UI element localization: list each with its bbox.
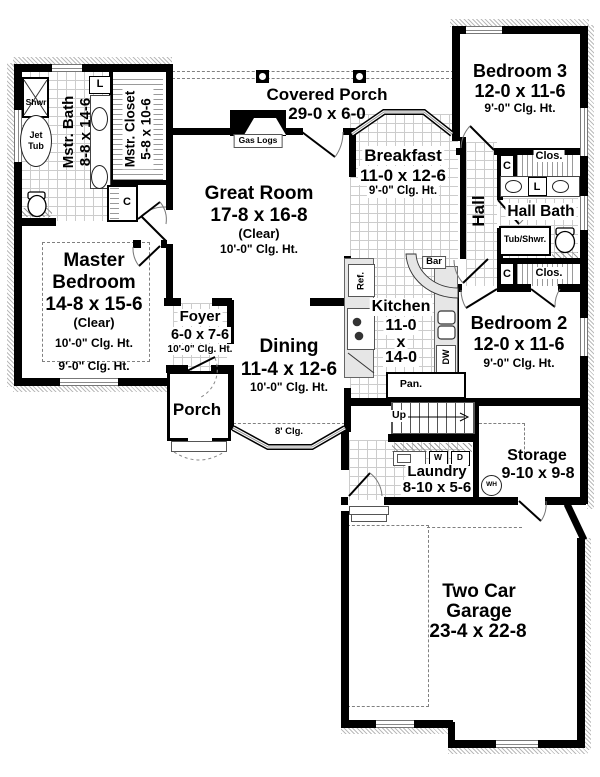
dining-name: Dining xyxy=(259,336,318,357)
dishwasher-label: DW xyxy=(441,350,451,365)
master-bath-name: Mstr. Bath xyxy=(60,96,77,169)
breakfast-name: Breakfast xyxy=(362,146,444,165)
closet-c-label: C xyxy=(123,196,131,208)
jet-tub-label-2: Tub xyxy=(28,141,44,151)
hall-label: Hall xyxy=(469,195,489,226)
great-room-dims: 17-8 x 16-8 xyxy=(210,205,307,226)
breakfast-dims: 11-0 x 12-6 xyxy=(358,166,448,185)
master-bath-dims: 8-8 x 14-6 xyxy=(77,96,94,169)
great-room-note: (Clear) xyxy=(238,227,279,242)
pantry-label: Pan. xyxy=(400,379,422,391)
dining-dims: 11-4 x 12-6 xyxy=(241,359,337,380)
shower-label: Shwr xyxy=(26,98,47,108)
porch-name: Porch xyxy=(173,400,221,419)
bedroom3-name: Bedroom 3 xyxy=(473,61,567,81)
bedroom2-name: Bedroom 2 xyxy=(471,313,568,334)
stairs-arrow xyxy=(402,413,468,421)
garage-dims: 23-4 x 22-8 xyxy=(429,621,526,642)
master-closet-dims: 5-8 x 10-6 xyxy=(138,91,154,168)
hall-bath-name: Hall Bath xyxy=(505,203,576,220)
covered-porch-name: Covered Porch xyxy=(267,85,388,104)
floor-plan: Covered Porch 29-0 x 6-0 Bedroom 3 12-0 … xyxy=(0,0,600,777)
breakfast-ceiling: 9'-0" Clg. Ht. xyxy=(367,185,439,198)
tub-shower-label: Tub/Shwr. xyxy=(504,234,546,244)
dryer-label: D xyxy=(457,453,463,463)
storage-name: Storage xyxy=(507,447,567,465)
master-bedroom-name-2: Bedroom xyxy=(52,272,135,293)
master-bath-label: Mstr. Bath 8-8 x 14-6 xyxy=(60,96,95,169)
master-bedroom-ceiling-2: 9'-0" Clg. Ht. xyxy=(58,360,129,373)
fridge-label: Ref. xyxy=(357,272,368,290)
linen-label: L xyxy=(97,78,104,90)
foyer-name: Foyer xyxy=(178,309,223,326)
closet-label: Clos. xyxy=(534,150,565,162)
bedroom3-ceiling: 9'-0" Clg. Ht. xyxy=(484,102,555,115)
garage-name-1: Two Car xyxy=(442,581,516,602)
great-room-ceiling: 10'-0" Clg. Ht. xyxy=(220,243,298,256)
water-heater-label: WH xyxy=(486,481,497,488)
bar-label: Bar xyxy=(422,256,446,269)
jet-tub-label-1: Jet xyxy=(29,130,42,140)
gas-logs-label: Gas Logs xyxy=(234,134,283,148)
closet-c-label: C xyxy=(503,160,511,172)
master-bedroom-name-1: Master xyxy=(63,250,124,271)
covered-porch-dims: 29-0 x 6-0 xyxy=(288,104,366,123)
closet-label: Clos. xyxy=(534,267,565,279)
kitchen-dim-w: 11-0 xyxy=(383,317,418,335)
great-room-name: Great Room xyxy=(205,183,314,204)
kitchen-dim-l: 14-0 xyxy=(383,349,419,367)
bedroom2-dims: 12-0 x 11-6 xyxy=(473,334,564,354)
laundry-dims: 8-10 x 5-6 xyxy=(401,480,473,497)
bedroom3-dims: 12-0 x 11-6 xyxy=(474,81,565,101)
master-bedroom-ceiling: 10'-0" Clg. Ht. xyxy=(55,337,133,350)
dining-bay-ceiling: 8' Clg. xyxy=(273,427,305,438)
master-closet-label: Mstr. Closet 5-8 x 10-6 xyxy=(122,89,153,170)
garage-corner-wall xyxy=(567,504,584,540)
master-bedroom-note: (Clear) xyxy=(73,316,114,331)
fireplace-firebox xyxy=(244,118,286,135)
stairs-up-label: Up xyxy=(390,410,408,422)
master-closet-name: Mstr. Closet xyxy=(122,91,138,168)
storage-dims: 9-10 x 9-8 xyxy=(502,465,575,483)
garage-name-2: Garage xyxy=(446,601,511,622)
master-bedroom-dims: 14-8 x 15-6 xyxy=(45,294,142,315)
linen-label: L xyxy=(534,181,541,193)
dining-ceiling: 10'-0" Clg. Ht. xyxy=(250,381,328,394)
bedroom2-ceiling: 9'-0" Clg. Ht. xyxy=(483,357,554,370)
foyer-dims: 6-0 x 7-6 xyxy=(169,327,231,343)
closet-c-label: C xyxy=(503,268,511,280)
kitchen-name: Kitchen xyxy=(370,298,433,316)
foyer-ceiling: 10'-0" Clg. Ht. xyxy=(166,344,235,355)
washer-label: W xyxy=(434,453,442,463)
